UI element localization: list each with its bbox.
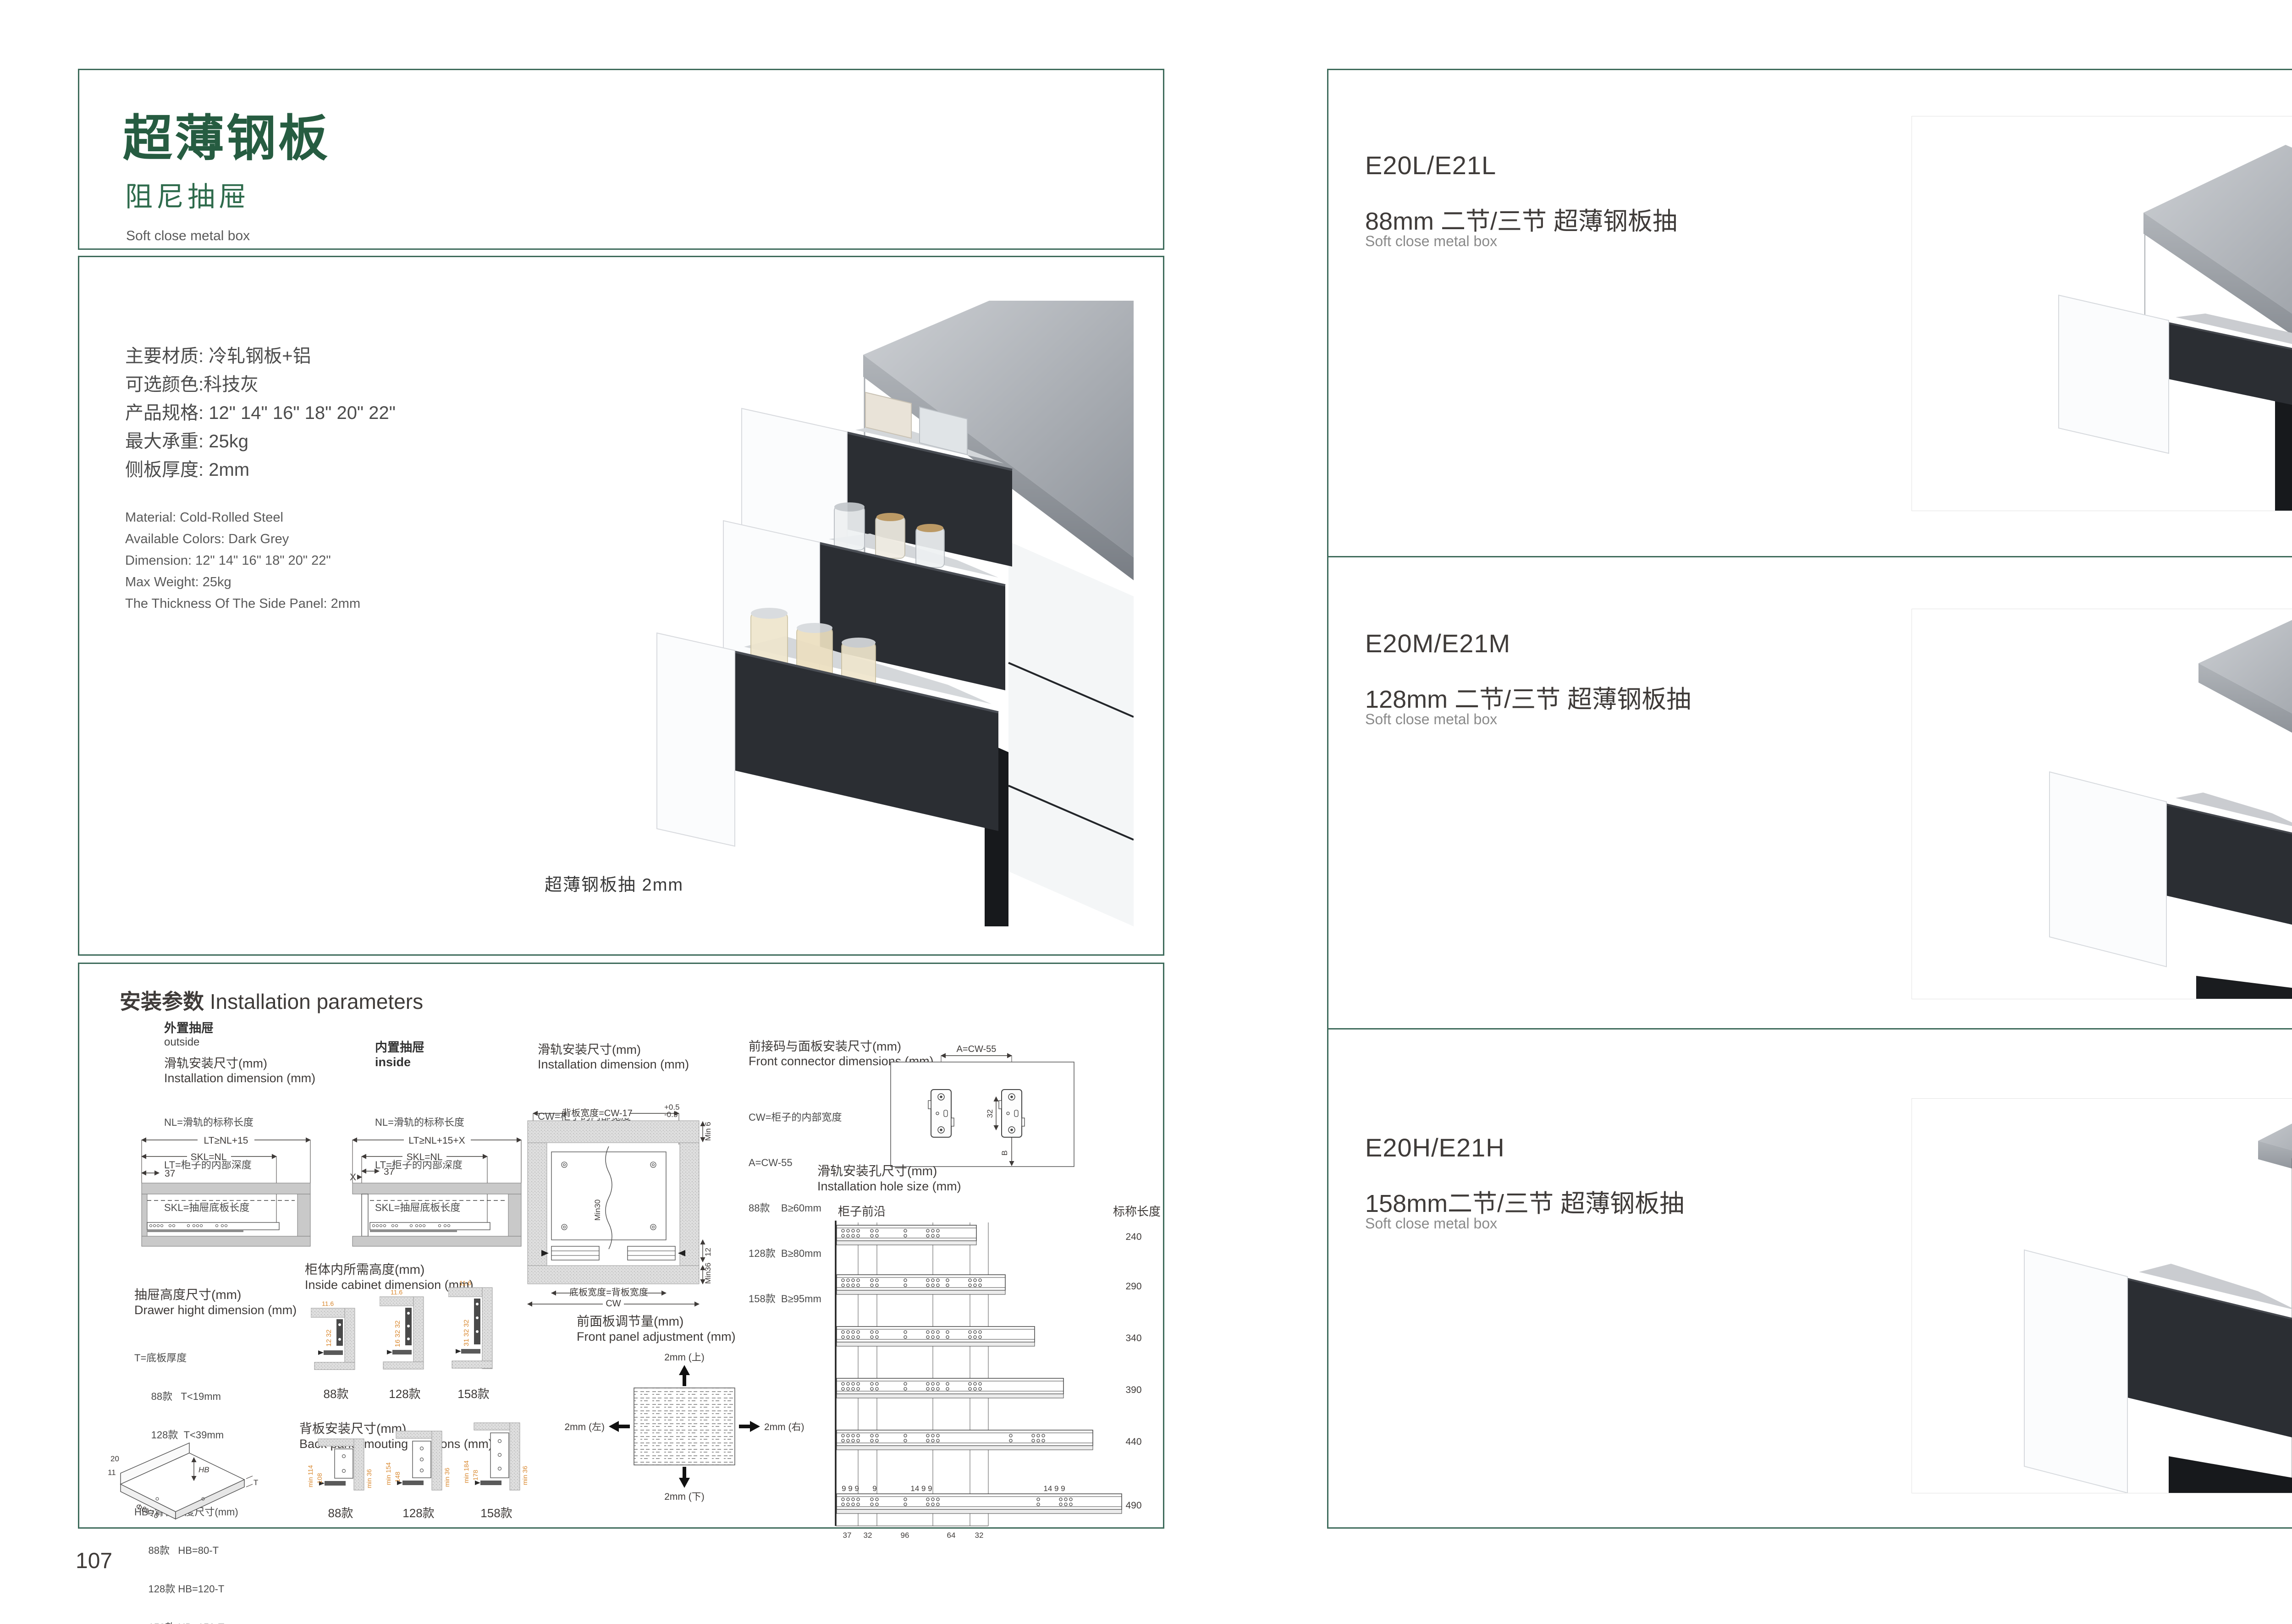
cw-sub-en: Installation dimension (mm) (538, 1057, 689, 1072)
page-subtitle-en: Soft close metal box (126, 228, 250, 244)
cabinet-height-158: 11.6 31 32 32 (448, 1280, 499, 1379)
topdim-2: 9 (872, 1484, 876, 1493)
outside-head: 外置抽屉 outside (164, 1018, 214, 1049)
bp-158-wall: min 36 (521, 1466, 529, 1485)
legend-line: 88款 B≥60mm (749, 1200, 842, 1216)
bp-88-label: 88款 (306, 1504, 375, 1521)
fa-title-cn: 前面板调节量(mm) (577, 1311, 736, 1330)
dim-cw: CW (606, 1299, 621, 1307)
legend-line: 158款 HB=150-T (134, 1621, 238, 1624)
install-parameters-box: 安装参数 Installation parameters 外置抽屉 outsid… (78, 963, 1164, 1529)
spec-cn-line: 侧板厚度: 2mm (125, 456, 396, 484)
product-name-en: Soft close metal box (1365, 711, 1497, 728)
product-image-e20h (1912, 1098, 2292, 1493)
install-title: 安装参数 Installation parameters (120, 985, 423, 1015)
ch-88-top: 11.6 (322, 1301, 334, 1307)
dim-back-width: 背板宽度=CW-17 (562, 1108, 633, 1118)
fa-down: 2mm (下) (664, 1492, 705, 1502)
outside-head-en: outside (164, 1036, 214, 1049)
front-adjust-title: 前面板调节量(mm) Front panel adjustment (mm) (577, 1311, 736, 1344)
dim-min36: Min36 (704, 1263, 712, 1284)
spec-cn-line: 可选颜色:科技灰 (125, 370, 396, 399)
dim-12: 12 (704, 1248, 712, 1256)
spec-list-cn: 主要材质: 冷轧钢板+铝 可选颜色:科技灰 产品规格: 12" 14" 16" … (125, 342, 396, 484)
cw-diagram: 背板宽度=CW-17 +0.5 -0.5 Min 6 Min30 12 (515, 1101, 712, 1307)
botdim-32a: 32 (864, 1531, 872, 1540)
spec-cn-line: 产品规格: 12" 14" 16" 18" 20" 22" (125, 399, 396, 427)
bp-128-outer: min 154 (385, 1462, 392, 1485)
ch-128-side: 16 32 32 (394, 1321, 402, 1347)
ch-88-label: 88款 (311, 1385, 361, 1402)
holes-title-cn: 滑轨安装孔尺寸(mm) (817, 1161, 961, 1179)
topdim-3: 14 9 9 (910, 1484, 932, 1493)
inside-head-cn: 内置抽屉 (375, 1037, 424, 1055)
legend-line: NL=滑轨的标称长度 (164, 1115, 253, 1129)
front-adjust-diagram: 2mm (上) 2mm (下) 2mm (左) 2mm (右) (556, 1351, 813, 1503)
dim-min6: Min 6 (704, 1122, 712, 1141)
holes-diagram: 240 290 340 390 440 (817, 1221, 1166, 1541)
spec-cn-line: 主要材质: 冷轧钢板+铝 (125, 342, 396, 370)
ch-128-top: 11.6 (391, 1289, 402, 1296)
product-name: 88mm 二节/三节 超薄钢板抽 (1365, 201, 1677, 237)
outside-sub-en: Installation dimension (mm) (164, 1071, 315, 1085)
holes-title-en: Installation hole size (mm) (817, 1179, 961, 1194)
dim-37: 37 (165, 1168, 175, 1179)
iso-11: 11 (108, 1468, 116, 1477)
photo-caption: 超薄钢板抽 2mm (545, 870, 683, 896)
product-section-e20m: E20M/E21M 128mm 二节/三节 超薄钢板抽 Soft close m… (1328, 556, 2292, 1028)
left-product-box: 主要材质: 冷轧钢板+铝 可选颜色:科技灰 产品规格: 12" 14" 16" … (78, 256, 1164, 956)
legend-line: 128款 HB=120-T (134, 1583, 238, 1596)
drawer-height-iso: 20 11 Φ6X10 HB T (107, 1429, 263, 1525)
product-name: 128mm 二节/三节 超薄钢板抽 (1365, 679, 1691, 715)
bp-128-inner: 148 (394, 1471, 401, 1482)
botdim-32b: 32 (975, 1531, 984, 1540)
cabinet-height-88: 11.6 12 32 (311, 1301, 361, 1379)
spec-en-line: The Thickness Of The Side Panel: 2mm (125, 593, 360, 615)
spec-cn-line: 最大承重: 25kg (125, 427, 396, 456)
inside-diagram: LT≥NL+15+X SKL=NL 37 X (350, 1133, 524, 1247)
ch-title-cn: 柜体内所需高度(mm) (305, 1260, 474, 1278)
rail-length-440: 440 (1125, 1437, 1141, 1447)
product-name: 158mm二节/三节 超薄钢板抽 (1365, 1183, 1684, 1219)
ch-158-side: 31 32 32 (463, 1320, 470, 1346)
fa-right: 2mm (右) (764, 1422, 804, 1432)
dim-b: B (1000, 1151, 1009, 1156)
page-number-left: 107 (76, 1548, 112, 1574)
product-image-e20l (1912, 116, 2292, 511)
product-name-en: Soft close metal box (1365, 233, 1497, 250)
iso-20: 20 (110, 1454, 119, 1463)
holes-front-edge-label: 柜子前沿 (838, 1202, 886, 1219)
inside-head: 内置抽屉 inside (375, 1037, 424, 1069)
bp-128-wall: min 36 (443, 1468, 451, 1487)
botdim-64: 64 (947, 1531, 956, 1540)
back-panel-128: min 154 148 min 36 (384, 1429, 453, 1499)
rail-length-340: 340 (1125, 1333, 1141, 1343)
legend-line: 88款 HB=80-T (134, 1544, 238, 1557)
tol-minus: -0.5 (664, 1110, 678, 1119)
dim-skl: SKL=NL (191, 1152, 227, 1162)
spec-en-line: Dimension: 12" 14" 16" 18" 20" 22" (125, 550, 360, 572)
bp-88-inner: 108 (316, 1473, 323, 1484)
page-subtitle: 阻尼抽屉 (125, 175, 250, 215)
left-header-box: 超薄钢板 阻尼抽屉 Soft close metal box (78, 69, 1164, 250)
install-title-en: Installation parameters (210, 990, 423, 1013)
legend-line: NL=滑轨的标称长度 (375, 1115, 464, 1129)
spec-list-en: Material: Cold-Rolled Steel Available Co… (125, 507, 360, 615)
rail-length-490: 490 (1125, 1500, 1141, 1511)
outside-subtitle: 滑轨安装尺寸(mm) Installation dimension (mm) (164, 1053, 315, 1085)
outside-diagram: LT≥NL+15 SKL=NL 37 (139, 1133, 313, 1247)
legend-line: CW=柜子的内部宽度 (749, 1110, 842, 1125)
fa-title-en: Front panel adjustment (mm) (577, 1330, 736, 1344)
spec-en-line: Material: Cold-Rolled Steel (125, 507, 360, 528)
bp-158-inner: 178 (472, 1470, 479, 1481)
bp-88-outer: min 114 (307, 1465, 314, 1487)
install-title-cn: 安装参数 (120, 990, 204, 1013)
fa-left: 2mm (左) (565, 1422, 605, 1432)
dim-x: X (350, 1172, 356, 1183)
ch-158-top: 11.6 (459, 1280, 471, 1287)
dim-lt: LT≥NL+15 (204, 1135, 248, 1146)
outside-head-cn: 外置抽屉 (164, 1018, 214, 1036)
rail-length-390: 390 (1125, 1385, 1141, 1395)
ch-88-side: 12 32 (325, 1329, 333, 1347)
ch-158-label: 158款 (448, 1385, 499, 1402)
product-image-e20m (1912, 609, 2292, 999)
page-title: 超薄钢板 (123, 99, 330, 170)
dim-min30: Min30 (593, 1200, 602, 1221)
cw-subtitle: 滑轨安装尺寸(mm) Installation dimension (mm) (538, 1040, 689, 1072)
dim-skl: SKL=NL (407, 1152, 443, 1162)
product-section-e20h: E20H/E21H 158mm二节/三节 超薄钢板抽 Soft close me… (1328, 1028, 2292, 1530)
dh-title-cn: 抽屉高度尺寸(mm) (134, 1285, 297, 1303)
spec-en-line: Max Weight: 25kg (125, 572, 360, 593)
topdim-4: 14 9 9 (1043, 1484, 1065, 1493)
inside-head-en: inside (375, 1055, 424, 1069)
bp-88-wall: min 36 (365, 1469, 373, 1488)
bp-158-outer: min 184 (463, 1460, 470, 1483)
cabinet-height-128: 11.6 16 32 32 (380, 1289, 430, 1379)
dim-bottom-width: 底板宽度=背板宽度 (569, 1287, 648, 1298)
spec-en-line: Available Colors: Dark Grey (125, 528, 360, 550)
dim-32: 32 (986, 1109, 994, 1118)
product-name-en: Soft close metal box (1365, 1215, 1497, 1232)
back-panel-158: min 184 178 min 36 (462, 1421, 531, 1499)
product-code: E20L/E21L (1365, 150, 1496, 180)
product-section-e20l: E20L/E21L 88mm 二节/三节 超薄钢板抽 Soft close me… (1328, 70, 2292, 556)
botdim-37: 37 (843, 1531, 852, 1540)
product-code: E20M/E21M (1365, 628, 1510, 658)
product-photo (526, 301, 1134, 926)
botdim-96: 96 (901, 1531, 909, 1540)
holes-nominal-label: 标称长度 (1113, 1202, 1161, 1219)
ch-128-label: 128款 (380, 1385, 430, 1402)
rail-length-290: 290 (1125, 1281, 1141, 1292)
bp-158-label: 158款 (462, 1504, 531, 1521)
legend-line: T=底板厚度 (134, 1352, 238, 1365)
holes-title: 滑轨安装孔尺寸(mm) Installation hole size (mm) (817, 1161, 961, 1194)
catalog-spread: 超薄钢板 阻尼抽屉 Soft close metal box 主要材质: 冷轧钢… (0, 0, 2292, 1624)
iso-hb: HB (198, 1465, 209, 1474)
rail-length-240: 240 (1125, 1232, 1141, 1242)
bp-128-label: 128款 (384, 1504, 453, 1521)
dh-title-en: Drawer hight dimension (mm) (134, 1303, 297, 1317)
cw-sub-cn: 滑轨安装尺寸(mm) (538, 1040, 689, 1057)
iso-t: T (253, 1478, 258, 1487)
dim-lt: LT≥NL+15+X (408, 1135, 465, 1146)
dim-a: A=CW-55 (957, 1046, 997, 1054)
drawer-height-title: 抽屉高度尺寸(mm) Drawer hight dimension (mm) (134, 1285, 297, 1317)
outside-sub-cn: 滑轨安装尺寸(mm) (164, 1053, 315, 1071)
topdim-1: 9 9 9 (842, 1484, 859, 1493)
back-panel-88: min 114 108 min 36 (306, 1437, 375, 1499)
legend-line: 88款 T<19mm (134, 1390, 238, 1403)
dim-37: 37 (384, 1167, 394, 1177)
right-products-box: E20L/E21L 88mm 二节/三节 超薄钢板抽 Soft close me… (1327, 69, 2292, 1529)
fa-up: 2mm (上) (664, 1352, 705, 1363)
product-code: E20H/E21H (1365, 1133, 1505, 1162)
